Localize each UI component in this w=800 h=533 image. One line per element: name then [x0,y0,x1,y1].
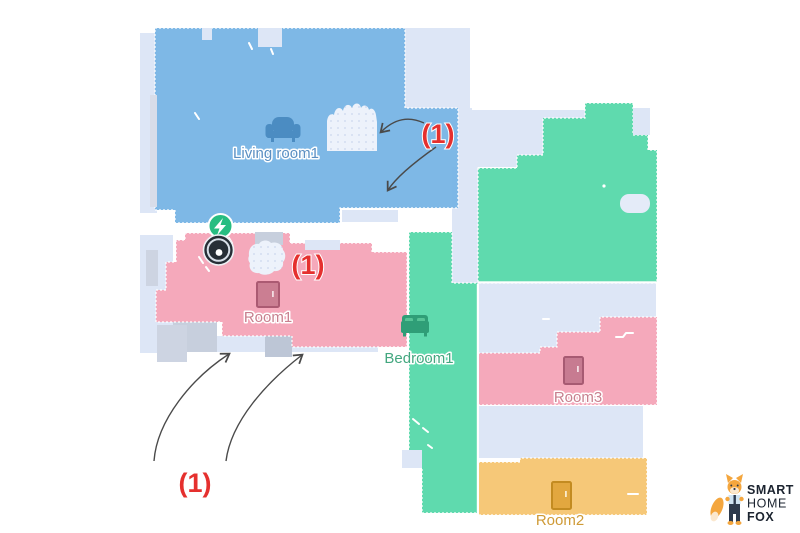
fox-mascot-icon [708,474,744,525]
annotation-arrow [154,354,229,461]
door-icon [564,357,583,384]
room-label-room3: Room3 [554,389,602,406]
obstacle-patch [157,325,187,362]
unexplored-area [342,210,398,222]
room-label-room2: Room2 [536,512,584,529]
annotation-arrow [226,355,302,461]
room-label-room1: Room1 [244,309,292,326]
obstacle-patch [150,95,157,207]
door-icon [552,482,571,509]
obstacle-patch [146,250,158,286]
map-notch [202,28,212,40]
smart-home-fox-logo: SMART HOME FOX [708,474,794,525]
map-notch [633,108,650,135]
map-notch [258,28,282,47]
room-label-bedroom1: Bedroom1 [384,350,453,367]
obstacle-mark [602,184,605,187]
floor-map: Living room1 Room1 Bedroom1 [0,0,800,533]
unexplored-area [478,406,643,458]
logo-text-fox: FOX [747,510,774,524]
door-icon [257,282,279,307]
room-room2[interactable]: Room2 [478,458,647,529]
carpet-area [620,194,650,213]
annotation-living-room: (1) [422,119,455,149]
logo-text-smart: SMART [747,483,794,497]
vacuum-map-screenshot: Living room1 Room1 Bedroom1 [0,0,800,533]
logo-text-home: HOME [747,497,787,511]
unexplored-area [210,336,268,352]
robot-vacuum-icon[interactable] [204,235,234,265]
obstacle-patch [265,335,292,357]
unexplored-area [403,28,470,108]
room-label-living-room1: Living room1 [233,145,319,162]
annotation-bottom: (1) [179,468,212,498]
annotation-room1: (1) [292,250,325,280]
carpet-area [248,240,285,274]
map-notch [305,240,340,250]
map-notch [402,450,422,468]
